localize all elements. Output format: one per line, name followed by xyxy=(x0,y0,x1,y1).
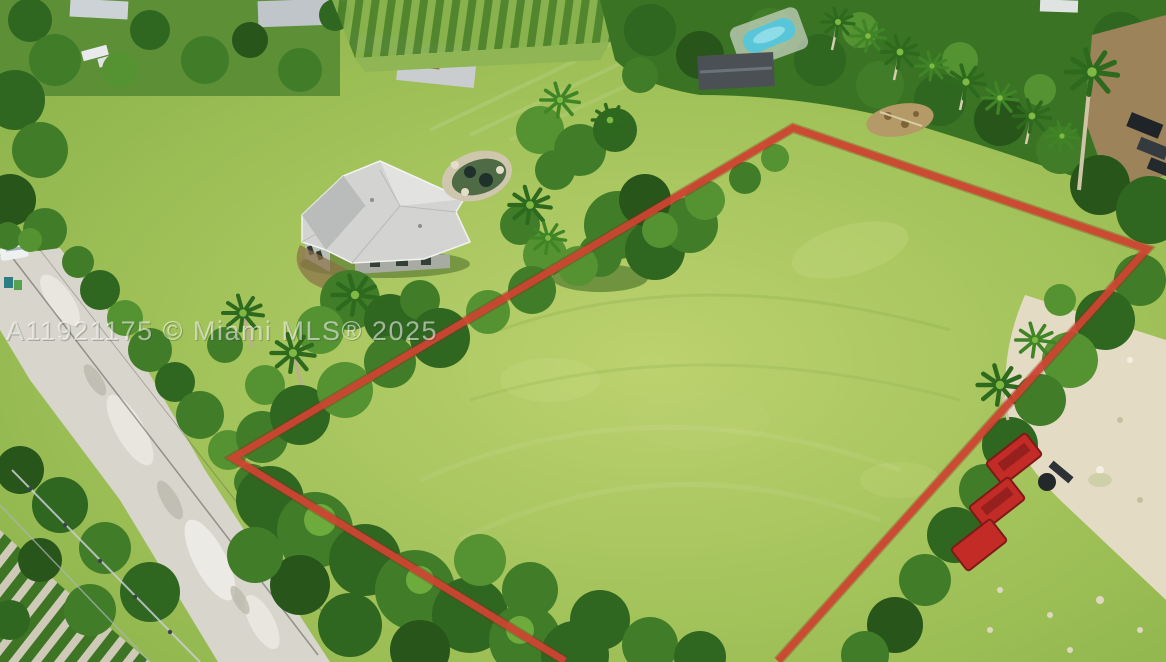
aerial-photo: A11921175 © Miami MLS® 2025 A11921175 © … xyxy=(0,0,1166,662)
machinery xyxy=(1038,473,1056,491)
watermark-text: A11921175 © Miami MLS® 2025 xyxy=(6,316,438,346)
shed xyxy=(697,52,775,90)
trash-bin xyxy=(4,277,13,288)
aerial-photo-canvas: A11921175 © Miami MLS® 2025 A11921175 © … xyxy=(0,0,1166,662)
trash-bin xyxy=(14,280,22,290)
watermark: A11921175 © Miami MLS® 2025 A11921175 © … xyxy=(6,316,439,347)
